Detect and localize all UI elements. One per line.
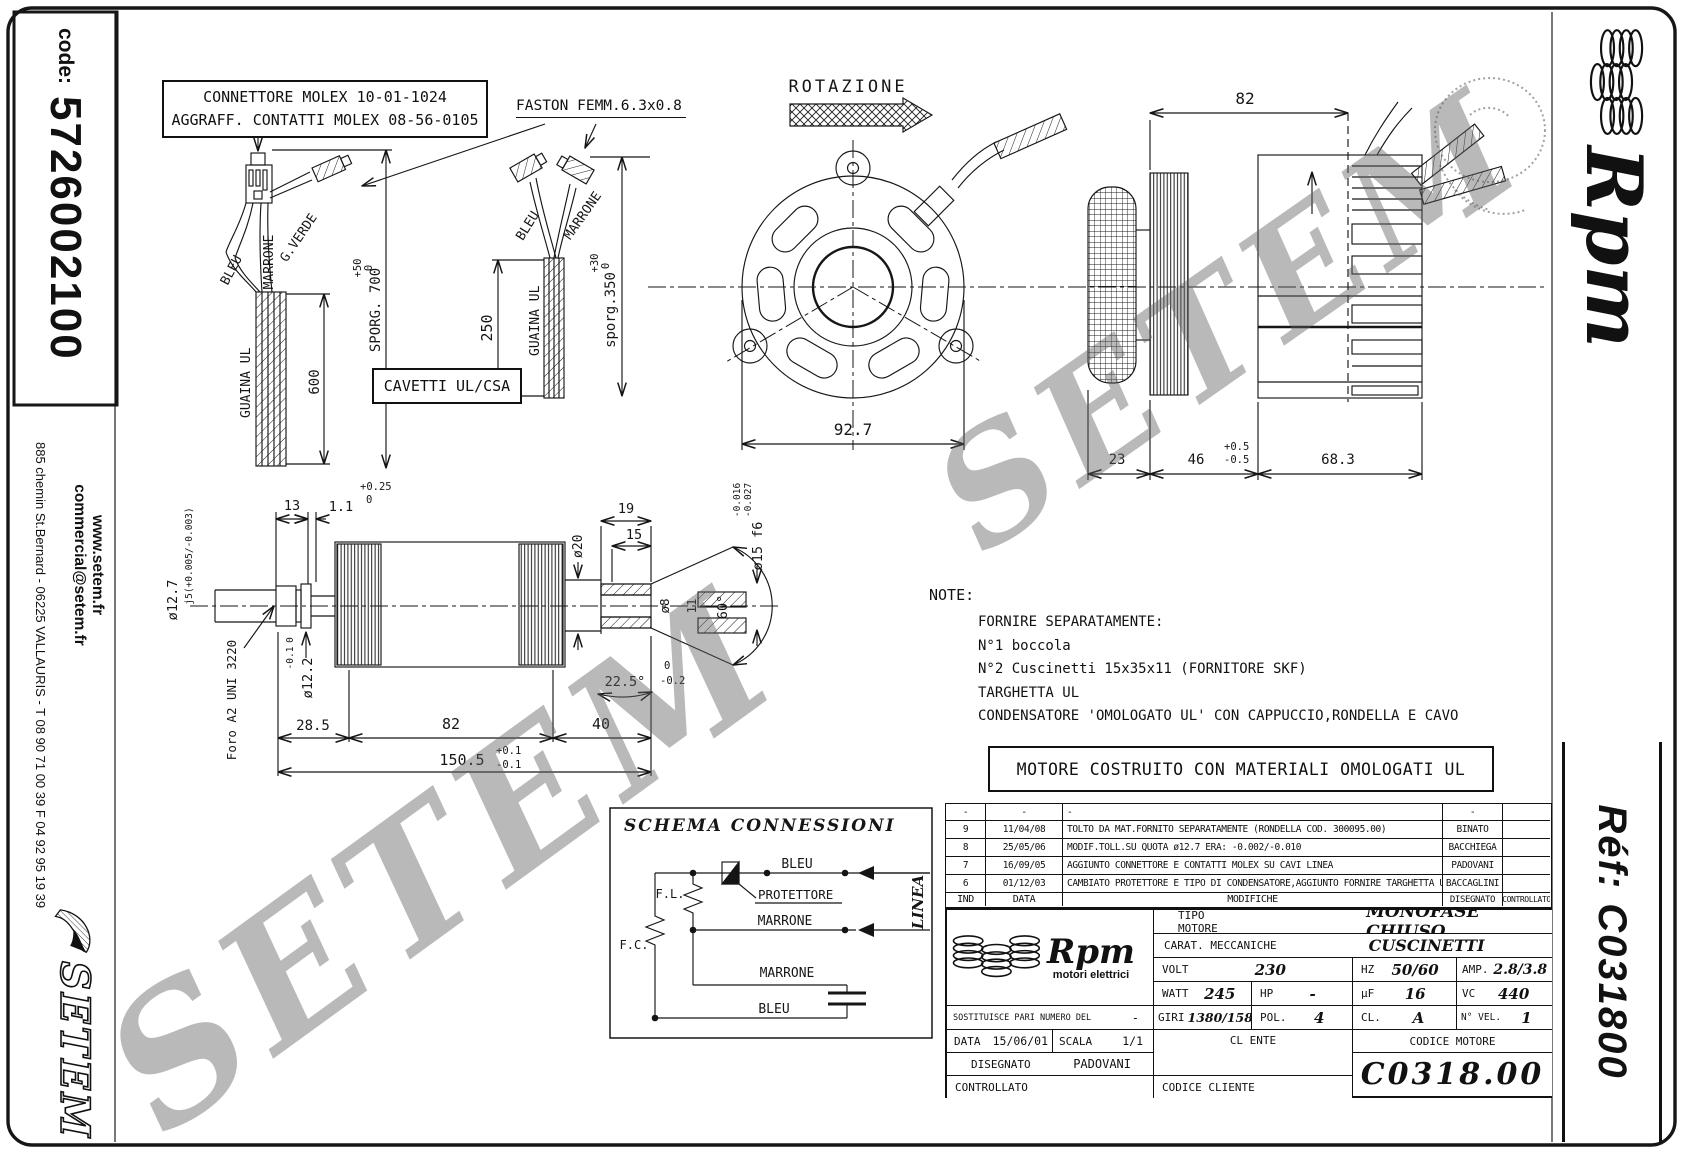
shaft-d15f6-label: ø15 f6 [750,522,766,571]
schema-bleu-top-label: BLEU [781,857,812,872]
revision-row: 8 [946,839,986,857]
shaft-ang60: 60° [715,595,731,619]
shaft-d20-label: ø20 [571,535,586,558]
revision-row: TOLTO DA MAT.FORNITO SEPARATAMENTE (ROND… [1063,821,1443,839]
amp-value: 2.8/3.8 [1493,962,1547,978]
data-cell: DATA 15/06/01 [947,1030,1053,1053]
shaft-d122-label: ø12.2 [300,658,316,699]
pol-cell: POL. 4 [1252,1006,1353,1030]
wire2-dim250: 250 [478,314,496,341]
side-dim-46: 46 [1188,452,1205,468]
note-title: NOTE: [929,586,974,604]
ref-text: Réf: C031800 [1590,804,1635,1079]
setem-logo-strip: SETEM [36,905,114,1140]
volt-value: 230 [1255,961,1286,979]
tipo-motore-value: MONOFASE CHIUSO [1366,910,1552,934]
revision-row: CAMBIATO PROTETTORE E TIPO DI CONDENSATO… [1063,875,1443,893]
front-dim-927: 92.7 [834,420,873,439]
contact-strip: www.setem.fr commercial@setem.fr [62,440,114,690]
titleblock-brand-script: Rpm [1047,935,1135,969]
revision-header-ind: IND [946,893,986,906]
shaft-ang225-tol-lo: -0.2 [660,675,685,687]
sostituisce-value: - [1132,1011,1139,1025]
scala-value: 1/1 [1122,1034,1143,1048]
setem-logo-text: SETEM [52,961,99,1140]
shaft-dim-1505: 150.5 [439,751,484,769]
connector-note-line1: CONNETTORE MOLEX 10-01-1024 [203,86,447,109]
website-text: www.setem.fr [88,515,106,615]
shaft-foro-label: Foro A2 UNI 3220 [224,640,239,760]
rotazione-label: ROTAZIONE [788,77,907,97]
giri-cell: GIRI 1380/1580 [1154,1006,1252,1030]
wire1-dim600: 600 [307,369,323,394]
cavetti-box: CAVETTI UL/CSA [372,368,522,404]
side-dim-683: 68.3 [1321,452,1355,468]
revision-row: BINATO [1443,821,1503,839]
shaft-dim-19: 19 [618,501,634,517]
revision-row [1503,839,1550,857]
code-strip: code: 5726002100 [16,14,115,403]
email-text: commercial@setem.fr [70,484,88,646]
shaft-d122-tol-lo: -0.1 [285,646,296,669]
hp-cell: HP - [1252,982,1353,1006]
schema-fc-label: F.C. [620,938,649,952]
schema-marrone-bot-label: MARRONE [760,966,815,981]
vc-value: 440 [1498,985,1529,1003]
carat-value: CUSCINETTI [1369,936,1485,955]
ref-strip: Réf: C031800 [1562,742,1662,1142]
uf-cell: µF 16 [1353,982,1457,1006]
revision-row: PADOVANI [1443,857,1503,875]
revision-row [1503,804,1550,821]
wire1-marrone-label: MARRONE [262,235,277,290]
shaft-dim-285: 28.5 [296,718,330,734]
vc-cell: VC 440 [1457,982,1552,1006]
revision-row: - [1443,804,1503,821]
shaft-d127-label: ø12.7 [165,580,181,621]
revision-row: 9 [946,821,986,839]
shaft-dim-1505-tol-lo: -0.1 [496,759,521,771]
wire2-tol-lo: 0 [600,263,612,269]
title-block: Rpm motori elettrici TIPO MOTORE MONOFAS… [945,908,1552,1098]
rotation-arrow: ROTAZIONE [788,77,932,132]
revision-header-modifiche: MODIFICHE [1063,893,1443,906]
shaft-dim-11b: 11 [684,598,699,613]
side-dim-46-tol-hi: +0.5 [1224,441,1249,453]
revision-row [1503,857,1550,875]
revision-row: - [946,804,986,821]
rpm-logo-strip: Rpm [1558,28,1670,348]
shaft-d15f6-tol-hi: -0.016 [732,483,743,518]
revision-row: - [986,804,1063,821]
revision-row [1503,821,1550,839]
amp-cell: AMP. 2.8/3.8 [1457,958,1552,982]
cl-cell: CL. A [1353,1006,1457,1030]
titleblock-brand-sub: motori elettrici [1053,969,1129,981]
carat-meccaniche-cell: CARAT. MECCANICHE CUSCINETTI [1154,934,1552,958]
connection-schema: SCHEMA CONNESSIONI [610,808,932,1038]
rpm-sketch-watermark [1410,70,1560,250]
cl-ente-cell: CL ENTE [1154,1030,1353,1076]
titleblock-logo-cell: Rpm motori elettrici [947,910,1154,1006]
shaft-d122-tol-hi: 0 [285,637,296,643]
revision-row [1503,875,1550,893]
shaft-ang225-tol-hi: 0 [664,660,670,672]
shaft-dim-13: 13 [284,498,300,514]
nvel-value: 1 [1521,1009,1531,1027]
schema-protettore-label: PROTETTORE [758,887,833,902]
wire1-tol-lo: 0 [363,265,375,271]
schema-marrone-mid-label: MARRONE [758,914,813,929]
revision-row: 16/09/05 [986,857,1063,875]
shaft-dim-15: 15 [626,527,642,543]
shaft-ang225: 22.5° [605,674,646,690]
revision-row: MODIF.TOLL.SU QUOTA ø12.7 ERA: -0.002/-0… [1063,839,1443,857]
tipo-motore-cell: TIPO MOTORE MONOFASE CHIUSO [1154,910,1552,934]
setem-swoosh-icon [43,905,107,957]
address-text: 885 chemin St.Bernard - 06225 VALLAURIS … [34,442,49,908]
shaft-d8-label: ø8 [657,598,672,613]
scala-cell: SCALA 1/1 [1053,1030,1154,1053]
note-line: N°2 Cuscinetti 15x35x11 (FORNITORE SKF) [978,658,1458,682]
code-label: code: [54,28,78,84]
watt-value: 245 [1204,985,1235,1003]
revision-row: 6 [946,875,986,893]
nvel-cell: N° VEL. 1 [1457,1006,1552,1030]
shaft-dim-11-tol-lo: 0 [366,494,372,506]
shaft-d127-fit-label: j5(+0.005/-0.003) [184,507,195,604]
faston-label: FASTON FEMM.6.3x0.8 [516,98,686,118]
watt-cell: WATT 245 [1154,982,1252,1006]
rotor-shaft-drawing: 13 1.1 +0.25 0 ø12.7 j5(+0.005/-0.003) ø… [165,481,780,776]
shaft-dim-11-tol-hi: +0.25 [360,481,392,493]
note-line: TARGHETTA UL [978,682,1458,706]
note-line: FORNIRE SEPARATAMENTE: [978,611,1458,635]
revision-header-disegnato: DISEGNATO [1443,893,1503,906]
shaft-dim-1505-tol-hi: +0.1 [496,745,521,757]
shaft-dim-11: 1.1 [329,499,353,515]
revision-row: 25/05/06 [986,839,1063,857]
side-dim-46-tol-lo: -0.5 [1224,454,1249,466]
giri-value: 1380/1580 [1188,1010,1253,1025]
cl-value: A [1413,1009,1425,1027]
wire2-guaina-label: GUAINA UL [528,285,543,356]
revision-header-data: DATA [986,893,1063,906]
ul-compliance-box: MOTORE COSTRUITO CON MATERIALI OMOLOGATI… [988,746,1494,792]
schema-title: SCHEMA CONNESSIONI [624,816,896,836]
side-dim-23: 23 [1109,452,1126,468]
codice-motore-label-cell: CODICE MOTORE [1353,1030,1552,1053]
wire1-gverde-label: G.VERDE [278,211,321,265]
revision-row: AGGIUNTO CONNETTORE E CONTATTI MOLEX SU … [1063,857,1443,875]
rpm-coils-logo-icon [1562,28,1666,136]
note-line: CONDENSATORE 'OMOLOGATO UL' CON CAPPUCCI… [978,705,1458,729]
note-line: N°1 boccola [978,635,1458,659]
codice-motore-value: C0318.00 [1361,1057,1545,1092]
hz-cell: HZ 50/60 [1353,958,1457,982]
rpm-brand-script: Rpm [1569,146,1660,348]
volt-cell: VOLT 230 [1154,958,1353,982]
note-list: FORNIRE SEPARATAMENTE: N°1 boccola N°2 C… [978,611,1458,729]
disegnato-value: PADOVANI [1073,1057,1131,1071]
hp-value: - [1310,985,1316,1003]
revision-row: 7 [946,857,986,875]
data-value: 15/06/01 [993,1034,1048,1048]
disegnato-cell: DISEGNATO PADOVANI [947,1053,1154,1076]
shaft-dim-82: 82 [442,715,460,733]
revision-row: - [1063,804,1443,821]
revision-row: 01/12/03 [986,875,1063,893]
shaft-d15f6-tol-lo: -0.027 [743,483,754,517]
codice-motore-value-cell: C0318.00 [1353,1053,1552,1096]
schema-linea-label: LINEA [909,875,927,930]
wire1-guaina-label: GUAINA UL [239,347,254,418]
connector-note-box: CONNETTORE MOLEX 10-01-1024 AGGRAFF. CON… [162,80,488,138]
connector-note-line2: AGGRAFF. CONTATTI MOLEX 08-56-0105 [171,109,478,132]
technical-drawing-page: BLEU MARRONE G.VERDE GUAINA UL 600 SPORG… [0,0,1683,1153]
side-dim-82: 82 [1235,89,1254,108]
revision-row: BACCAGLINI [1443,875,1503,893]
wire2-marrone-label: MARRONE [561,189,605,242]
faston-wire-drawing: BLEU MARRONE GUAINA UL 250 sporg.350 +30… [362,124,650,398]
wire2-sporg-dim: sporg.350 [603,272,619,348]
sostituisce-cell: SOSTITUISCE PARI NUMERO DEL - [947,1006,1154,1030]
revision-row: 11/04/08 [986,821,1063,839]
wire1-sporg-dim: SPORG. 700 [368,268,384,352]
schema-bleu-bot-label: BLEU [758,1002,789,1017]
schema-fl-label: F.L. [656,887,685,901]
revision-header-controllato: CONTROLLATO [1503,893,1550,906]
revision-table: - - - - 9 11/04/08 TOLTO DA MAT.FORNITO … [945,803,1552,908]
code-value: 5726002100 [41,96,91,361]
codice-cliente-cell: CODICE CLIENTE [1154,1076,1353,1098]
hz-value: 50/60 [1392,961,1439,979]
controllato-cell: CONTROLLATO [947,1076,1154,1098]
rpm-coils-logo-icon [951,927,1043,989]
revision-row: BACCHIEGA [1443,839,1503,857]
shaft-dim-40: 40 [592,715,610,733]
uf-value: 16 [1405,985,1426,1003]
pol-value: 4 [1314,1009,1324,1027]
